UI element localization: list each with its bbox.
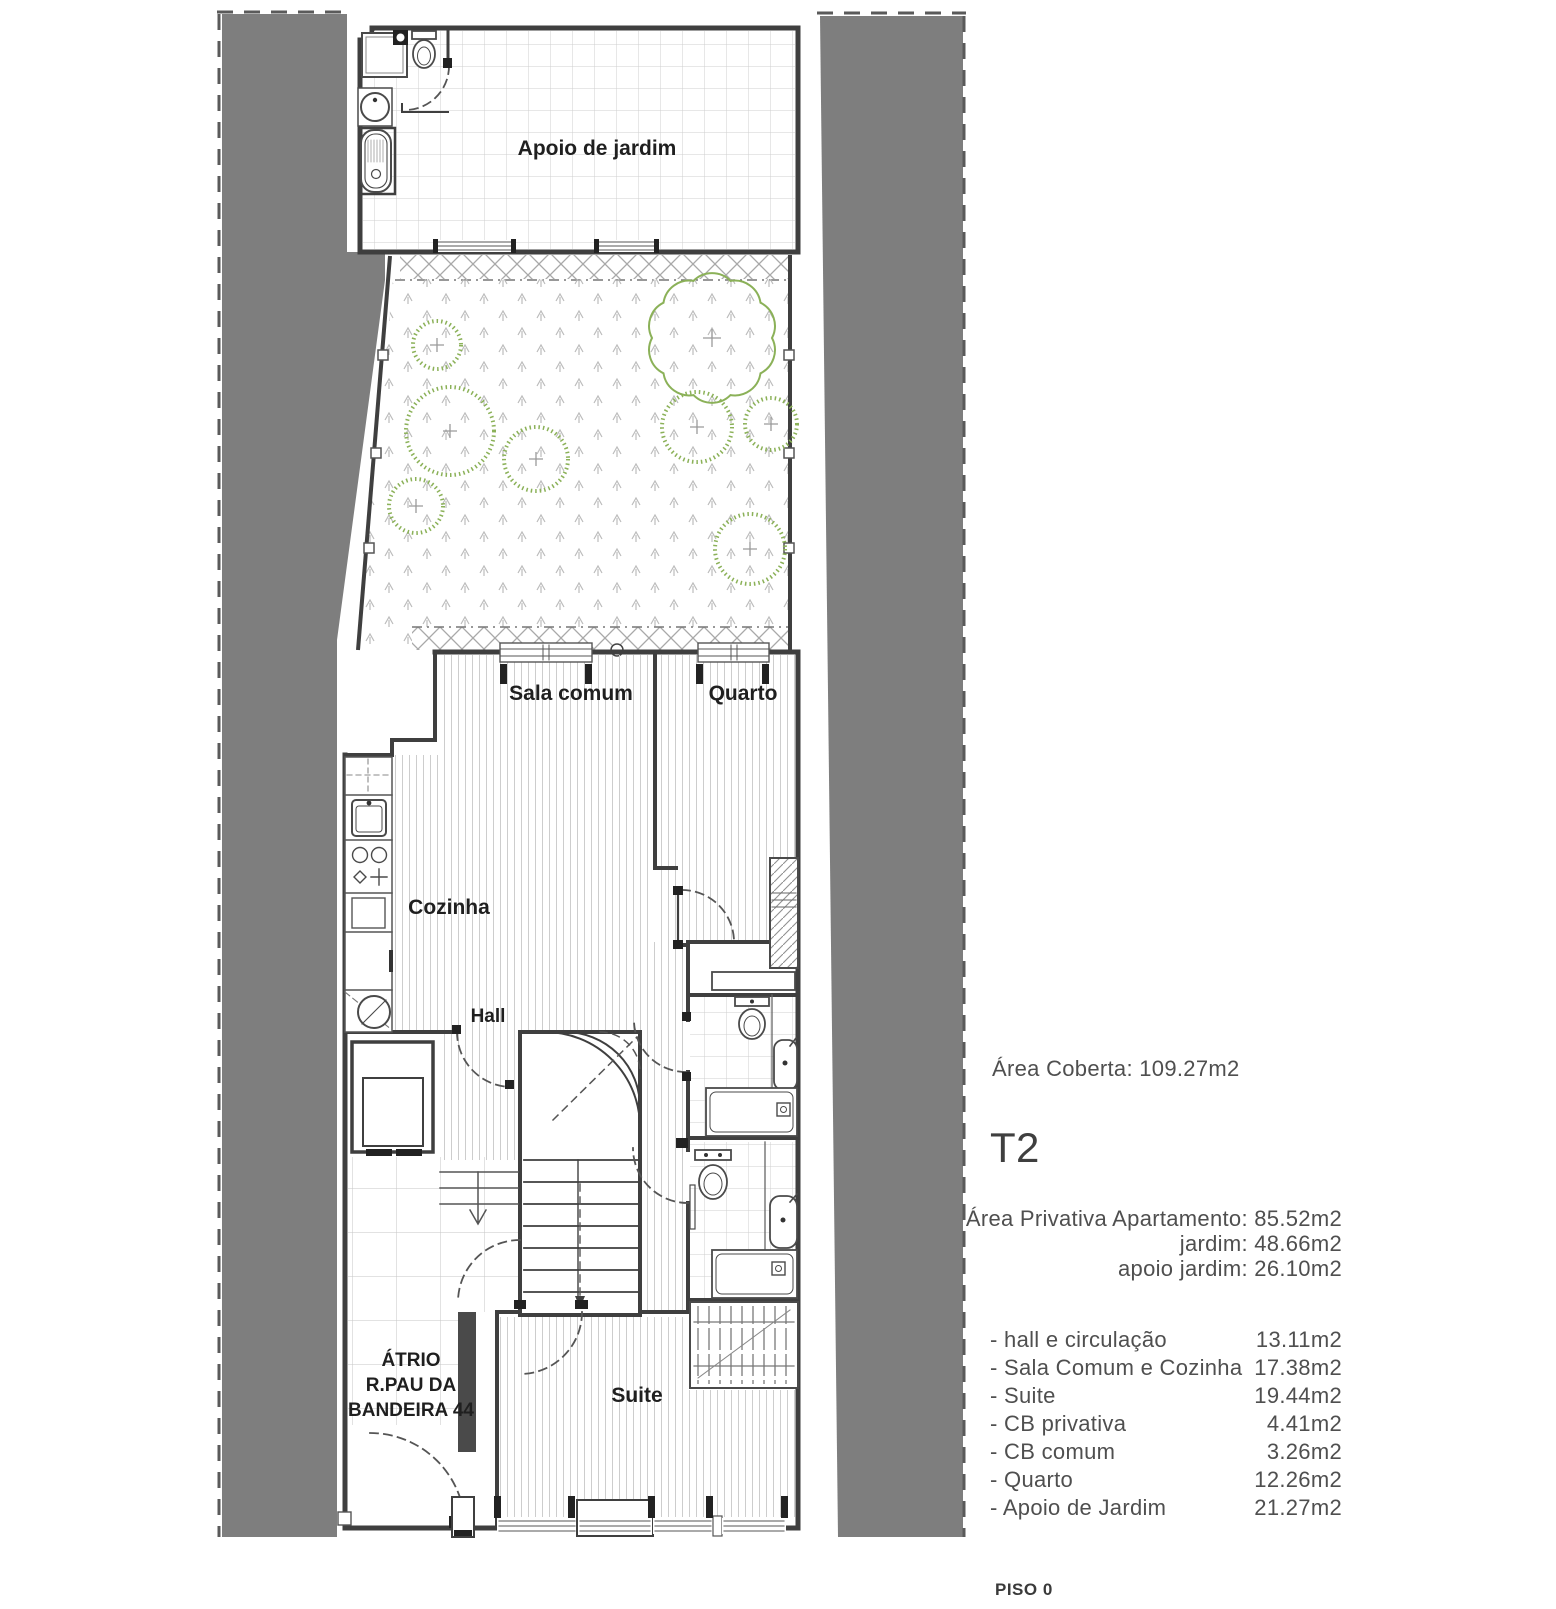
bathtub-icon bbox=[712, 1250, 797, 1298]
room-area-value: 4.41m2 bbox=[1267, 1410, 1342, 1438]
thick-wall bbox=[458, 1312, 476, 1452]
bathtub-icon bbox=[706, 1088, 797, 1136]
sink-icon bbox=[770, 1194, 797, 1248]
room-area-value: 13.11m2 bbox=[1256, 1326, 1342, 1354]
room-label-atrio-1: ÁTRIO bbox=[381, 1349, 440, 1371]
room-name: - CB privativa bbox=[990, 1410, 1126, 1438]
room-area-row: - Quarto 12.26m2 bbox=[990, 1466, 1342, 1494]
room-area-row: - Suite 19.44m2 bbox=[990, 1382, 1342, 1410]
corridor-floor bbox=[640, 942, 688, 1312]
kitchen-counter bbox=[345, 757, 393, 1032]
room-name: - Suite bbox=[990, 1382, 1056, 1410]
sink-icon bbox=[774, 1038, 797, 1090]
room-name: - Sala Comum e Cozinha bbox=[990, 1354, 1242, 1382]
window bbox=[433, 239, 516, 253]
wardrobe-suite bbox=[690, 1302, 798, 1388]
private-area-line: Área Privativa Apartamento: 85.52m2 bbox=[960, 1206, 1342, 1231]
paving-band-top bbox=[400, 255, 790, 279]
laundry-sink-icon bbox=[358, 996, 390, 1028]
room-area-value: 19.44m2 bbox=[1254, 1382, 1342, 1410]
door-jamb bbox=[443, 58, 452, 68]
neighbor-building-right bbox=[817, 13, 966, 1537]
room-name: - Apoio de Jardim bbox=[990, 1494, 1166, 1522]
room-area-row: - CB comum 3.26m2 bbox=[990, 1438, 1342, 1466]
private-area-line: jardim: 48.66m2 bbox=[960, 1231, 1342, 1256]
garden bbox=[358, 255, 797, 656]
room-area-value: 21.27m2 bbox=[1254, 1494, 1342, 1522]
window bbox=[594, 239, 659, 253]
staircase bbox=[520, 1032, 640, 1315]
room-area-value: 3.26m2 bbox=[1267, 1438, 1342, 1466]
room-label-atrio-2: R.PAU DA bbox=[366, 1375, 457, 1396]
room-label-cozinha: Cozinha bbox=[408, 896, 490, 919]
washbasin-icon bbox=[358, 88, 392, 126]
room-area-value: 12.26m2 bbox=[1254, 1466, 1342, 1494]
shelf-niche bbox=[712, 972, 795, 990]
room-label-sala-comum: Sala comum bbox=[509, 682, 633, 705]
room-area-row: - Sala Comum e Cozinha 17.38m2 bbox=[990, 1354, 1342, 1382]
unit-type-label: T2 bbox=[990, 1124, 1040, 1172]
bathtub-icon bbox=[361, 130, 391, 192]
room-area-value: 17.38m2 bbox=[1254, 1354, 1342, 1382]
room-name: - hall e circulação bbox=[990, 1326, 1167, 1354]
floor-label: PISO 0 bbox=[995, 1580, 1053, 1600]
apartment-floor: Sala comum Quarto Cozinha Hall Suite ÁTR… bbox=[338, 643, 798, 1537]
room-label-atrio-3: BANDEIRA 44 bbox=[348, 1400, 474, 1421]
private-areas-block: Área Privativa Apartamento: 85.52m2 jard… bbox=[960, 1206, 1342, 1281]
covered-area-text: Área Coberta: 109.27m2 bbox=[992, 1056, 1240, 1082]
room-area-row: - hall e circulação 13.11m2 bbox=[990, 1326, 1342, 1354]
room-area-row: - CB privativa 4.41m2 bbox=[990, 1410, 1342, 1438]
room-name: - Quarto bbox=[990, 1466, 1073, 1494]
elevator bbox=[352, 1042, 433, 1156]
floor-plan-page: Apoio de jardim bbox=[0, 0, 1556, 1609]
room-label-suite: Suite bbox=[611, 1384, 662, 1407]
garden-support-block: Apoio de jardim bbox=[358, 28, 798, 253]
toilet-icon bbox=[412, 31, 436, 68]
private-area-line: apoio jardim: 26.10m2 bbox=[960, 1256, 1342, 1281]
room-area-row: - Apoio de Jardim 21.27m2 bbox=[990, 1494, 1342, 1522]
room-label-quarto: Quarto bbox=[709, 682, 778, 705]
wardrobe-quarto bbox=[770, 858, 798, 968]
room-label-hall: Hall bbox=[471, 1006, 506, 1027]
room-name: - CB comum bbox=[990, 1438, 1115, 1466]
room-label-apoio-jardim: Apoio de jardim bbox=[518, 137, 677, 160]
room-area-list: - hall e circulação 13.11m2 - Sala Comum… bbox=[990, 1326, 1342, 1522]
kitchen-sink-icon bbox=[352, 800, 386, 836]
water-heater-icon bbox=[393, 30, 408, 45]
